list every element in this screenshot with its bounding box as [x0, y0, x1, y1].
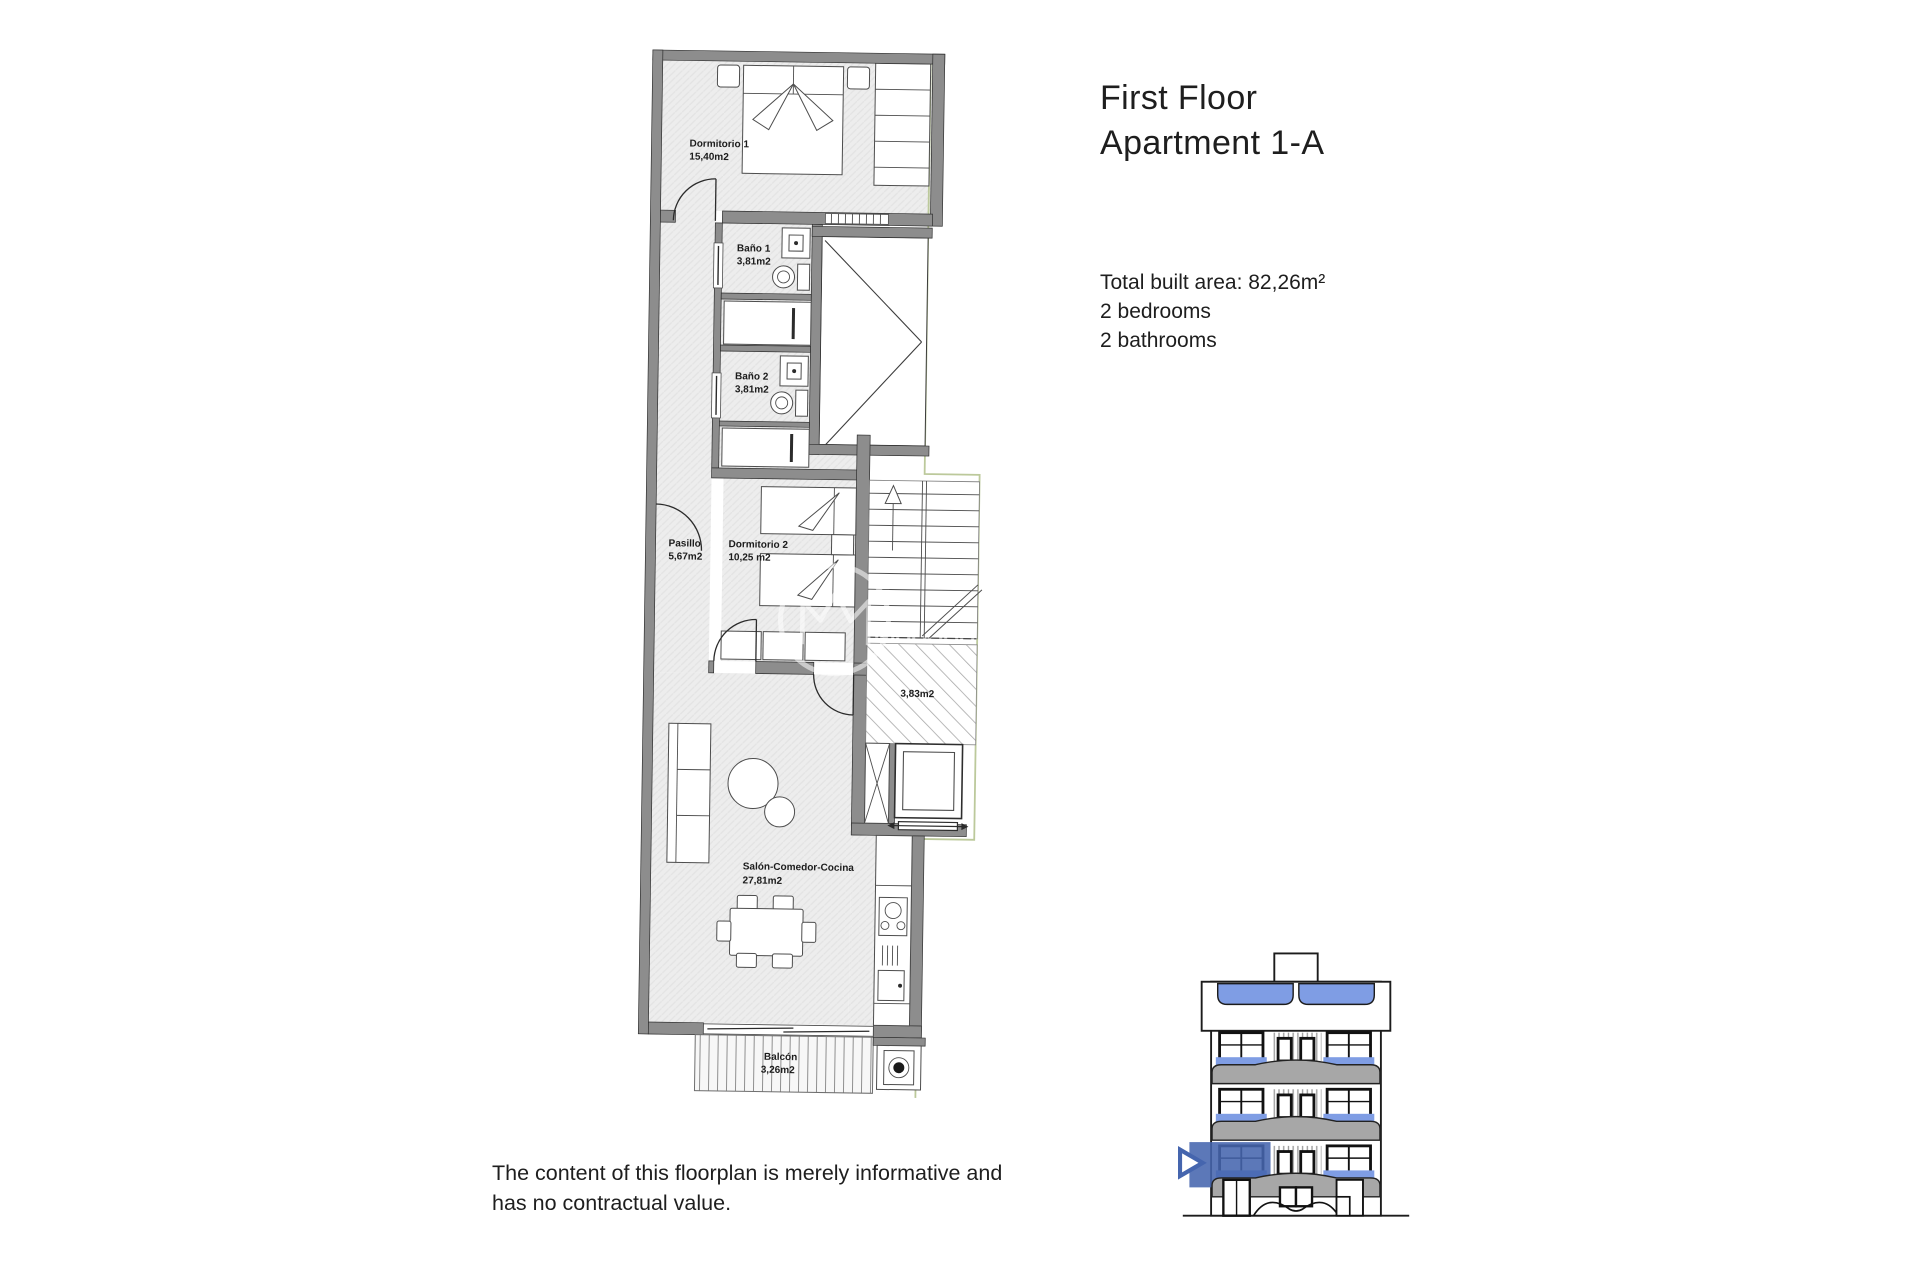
terrace-hatched: 3,83m2 [866, 643, 977, 745]
sofa [667, 723, 711, 863]
dining-table [729, 908, 803, 956]
side-table [764, 797, 794, 827]
floorplan-drawing: Dormitorio 1 15,40m2 [632, 42, 1008, 1107]
patio-void [819, 236, 928, 450]
toilet [771, 392, 793, 414]
slat-window [825, 214, 888, 225]
disclaimer-line1: The content of this floorplan is merely … [492, 1158, 1002, 1188]
total-area-text: Total built area: 82,26m² [1100, 268, 1325, 297]
chair [802, 922, 816, 942]
kitchen-counter [873, 835, 912, 1026]
bedrooms-text: 2 bedrooms [1100, 297, 1325, 326]
chair [737, 895, 757, 909]
page-title-line2: Apartment 1-A [1100, 121, 1324, 166]
title-block: First Floor Apartment 1-A [1100, 76, 1324, 166]
nightstand-right [847, 67, 869, 89]
floor-row [1212, 1089, 1380, 1140]
chair [736, 953, 756, 967]
nightstand-left [717, 65, 739, 87]
toilet-tank [795, 390, 807, 416]
roof-box [1274, 953, 1317, 981]
facade-floors [1180, 1033, 1380, 1197]
chair [717, 921, 731, 941]
toilet-tank [797, 264, 809, 290]
hob [879, 897, 908, 935]
toilet [772, 266, 794, 288]
washer-unit [873, 1037, 926, 1090]
building-elevation [1178, 944, 1414, 1227]
page-title-line1: First Floor [1100, 76, 1324, 121]
bathrooms-text: 2 bathrooms [1100, 326, 1325, 355]
disclaimer: The content of this floorplan is merely … [492, 1158, 1002, 1218]
balcony-sliding-door [703, 1024, 873, 1037]
low-wardrobe [721, 631, 761, 660]
room-balcon: Balcón 3,26m2 [694, 1035, 925, 1094]
chair [773, 896, 793, 910]
page: Dormitorio 1 15,40m2 [0, 0, 1920, 1280]
apartment-details: Total built area: 82,26m² 2 bedrooms 2 b… [1100, 268, 1325, 355]
chair [772, 954, 792, 968]
staircase [867, 480, 983, 639]
floor-row [1212, 1033, 1380, 1084]
disclaimer-line2: has no contractual value. [492, 1188, 1002, 1218]
elevator [864, 743, 969, 831]
room-label: 3,83m2 [900, 689, 935, 701]
nightstand [831, 535, 853, 555]
